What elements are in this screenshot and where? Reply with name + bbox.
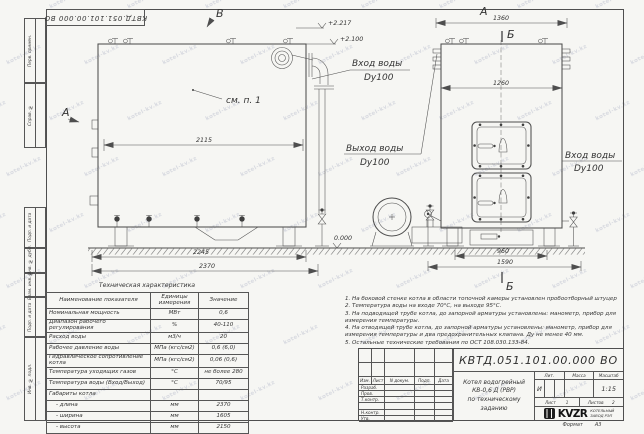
col-header: Подп. <box>415 377 435 385</box>
table-row: - ширинамм1605 <box>47 411 249 422</box>
boiler-side-view: см. п. 1 2115 <box>90 39 334 277</box>
spec-header: Наименование показателя <box>47 293 151 309</box>
table-row: Габариты котла <box>47 389 249 400</box>
section-label: Б <box>506 280 514 293</box>
sheet-count-row: Лист1 Листов2 <box>535 398 623 407</box>
fan-blower <box>370 198 462 246</box>
valve-icon <box>539 39 549 45</box>
dim-label: 2115 <box>196 137 212 144</box>
note-item: 2. Температура воды на входе 70°С, на вы… <box>345 303 621 310</box>
pipe-label: Dy100 <box>574 164 604 174</box>
label-inlet-side: Вход воды Dy100 <box>312 59 410 83</box>
callout-label: см. п. 1 <box>226 96 261 106</box>
label-outlet: Выход воды Dy100 <box>344 54 437 168</box>
lit-value: И <box>535 380 545 397</box>
valve-icon <box>124 39 134 45</box>
ground-line <box>88 248 585 255</box>
spec-table: Наименование показателя Единицы измерени… <box>46 292 249 434</box>
company-logo-text: KVZR <box>558 408 588 420</box>
company-cell: KVZR КОТЕЛЬНЫЙ ЗАВОД РЭП <box>535 407 623 420</box>
table-row: Температура воды (Вход/Выход)°С70/95 <box>47 378 249 389</box>
scale-value: 1:15 <box>594 380 623 397</box>
valve-icon <box>109 39 119 45</box>
sig-row-label: Утв. <box>359 416 385 422</box>
kvzr-logo-icon <box>544 408 555 419</box>
pipe-label: Dy100 <box>360 158 390 168</box>
callout-see-item-1: см. п. 1 <box>192 89 261 106</box>
view-mark-B: В <box>207 7 224 27</box>
dim-label: 1260 <box>493 80 509 87</box>
company-name: КОТЕЛЬНЫЙ ЗАВОД РЭП <box>590 409 614 419</box>
valve-icon <box>446 39 456 45</box>
table-row: - высотамм2150 <box>47 423 249 434</box>
doc-title: Котел водогрейный КВ-0,6 Д (РВР) по техн… <box>454 372 535 420</box>
elevation-label: +2.217 <box>328 20 351 27</box>
table-row: Гидравлическое сопротивление котлаМПа (к… <box>47 354 249 367</box>
dim-1360: 1360 <box>436 15 567 28</box>
col-header: Изм. <box>359 377 372 385</box>
drain-valve-icon <box>194 215 200 227</box>
dim-1260: 1260 <box>441 80 562 92</box>
table-row: Рабочее давление водыМПа (кгс/см2)0,6 (6… <box>47 343 249 354</box>
dim-label: 2370 <box>199 263 215 270</box>
section-label: Б <box>507 28 515 41</box>
gate-valve-icon <box>318 208 326 224</box>
dim-2370: 2370 <box>92 263 318 276</box>
view-mark-A-left: А <box>61 106 79 122</box>
ground-valve-right <box>562 211 579 246</box>
furnace-door-lower <box>472 173 531 222</box>
view-label: А <box>479 5 488 18</box>
spec-header: Значение <box>199 293 249 309</box>
spec-header-row: Наименование показателя Единицы измерени… <box>47 293 249 309</box>
burner-port <box>272 48 314 69</box>
note-item: 1. На боковой стенке котла в области топ… <box>345 296 621 303</box>
elevation-label: 0.000 <box>334 235 352 242</box>
note-item: 5. Остальные технические требования по О… <box>345 340 621 347</box>
valve-icon <box>227 39 237 45</box>
dim-label: 1590 <box>497 259 513 266</box>
spec-header: Единицы измерения <box>151 293 199 309</box>
view-label: А <box>61 106 70 119</box>
table-row: - длинамм2370 <box>47 400 249 411</box>
mass-value <box>565 380 595 397</box>
lit-mass-scale-values: И 1:15 <box>535 380 623 398</box>
note-item: 3. На подводящей трубе котла, до запорно… <box>345 311 621 325</box>
drawing-sheet: kotel-kv.kzkotel-kv.kzkotel-kv.kzkotel-k… <box>0 0 644 430</box>
table-row: Температура уходящих газов°Сне более 280 <box>47 367 249 378</box>
pipe-label: Выход воды <box>346 144 403 154</box>
drain-valve-icon <box>146 215 152 227</box>
dim-2115: 2115 <box>104 137 303 151</box>
side-flanges <box>433 49 570 69</box>
drain-valve-icon <box>239 215 245 227</box>
col-header: N докум. <box>385 377 415 385</box>
pipe-label: Вход воды <box>565 151 615 161</box>
dim-label: 960 <box>497 248 509 255</box>
table-row: Расход водым3/ч20 <box>47 332 249 343</box>
view-label: В <box>216 7 224 20</box>
table-row: Номинальная мощностьМВт0,6 <box>47 309 249 320</box>
technical-notes: 1. На боковой стенке котла в области топ… <box>345 296 621 347</box>
lit-mass-scale-headers: Лит. Масса Масштаб <box>535 372 623 380</box>
dim-label: 2245 <box>193 249 209 256</box>
drain-valve-icon <box>114 215 120 227</box>
dim-label: 1360 <box>493 15 509 22</box>
ground-valve-left <box>423 211 441 247</box>
valve-icon <box>460 39 470 45</box>
col-header: Дата <box>435 377 453 385</box>
table-row: Диапазон рабочего регулирования%40-110 <box>47 320 249 333</box>
col-header: Лист <box>372 377 385 385</box>
label-inlet-front: Вход воды Dy100 <box>562 151 622 174</box>
spec-table-title: Техническая характеристика <box>46 282 248 289</box>
dim-1590: 1590 <box>428 259 581 271</box>
valve-icon <box>284 39 294 45</box>
pipe-label: Dy100 <box>364 73 394 83</box>
elevation-label: +2.100 <box>340 36 363 43</box>
note-item: 4. На отводящей трубе котла, до запорной… <box>345 325 621 339</box>
inlet-elbow-pipe <box>306 53 334 246</box>
title-block: Изм. Лист N докум. Подп. Дата Разраб. Пр… <box>358 348 624 421</box>
title-block-change-table: Изм. Лист N докум. Подп. Дата Разраб. Пр… <box>359 349 453 420</box>
doc-number: КВТД.051.101.00.000 ВО <box>454 349 623 372</box>
pipe-label: Вход воды <box>352 59 402 69</box>
furnace-door-upper <box>472 122 531 169</box>
format-note: Формат А3 <box>540 422 624 428</box>
